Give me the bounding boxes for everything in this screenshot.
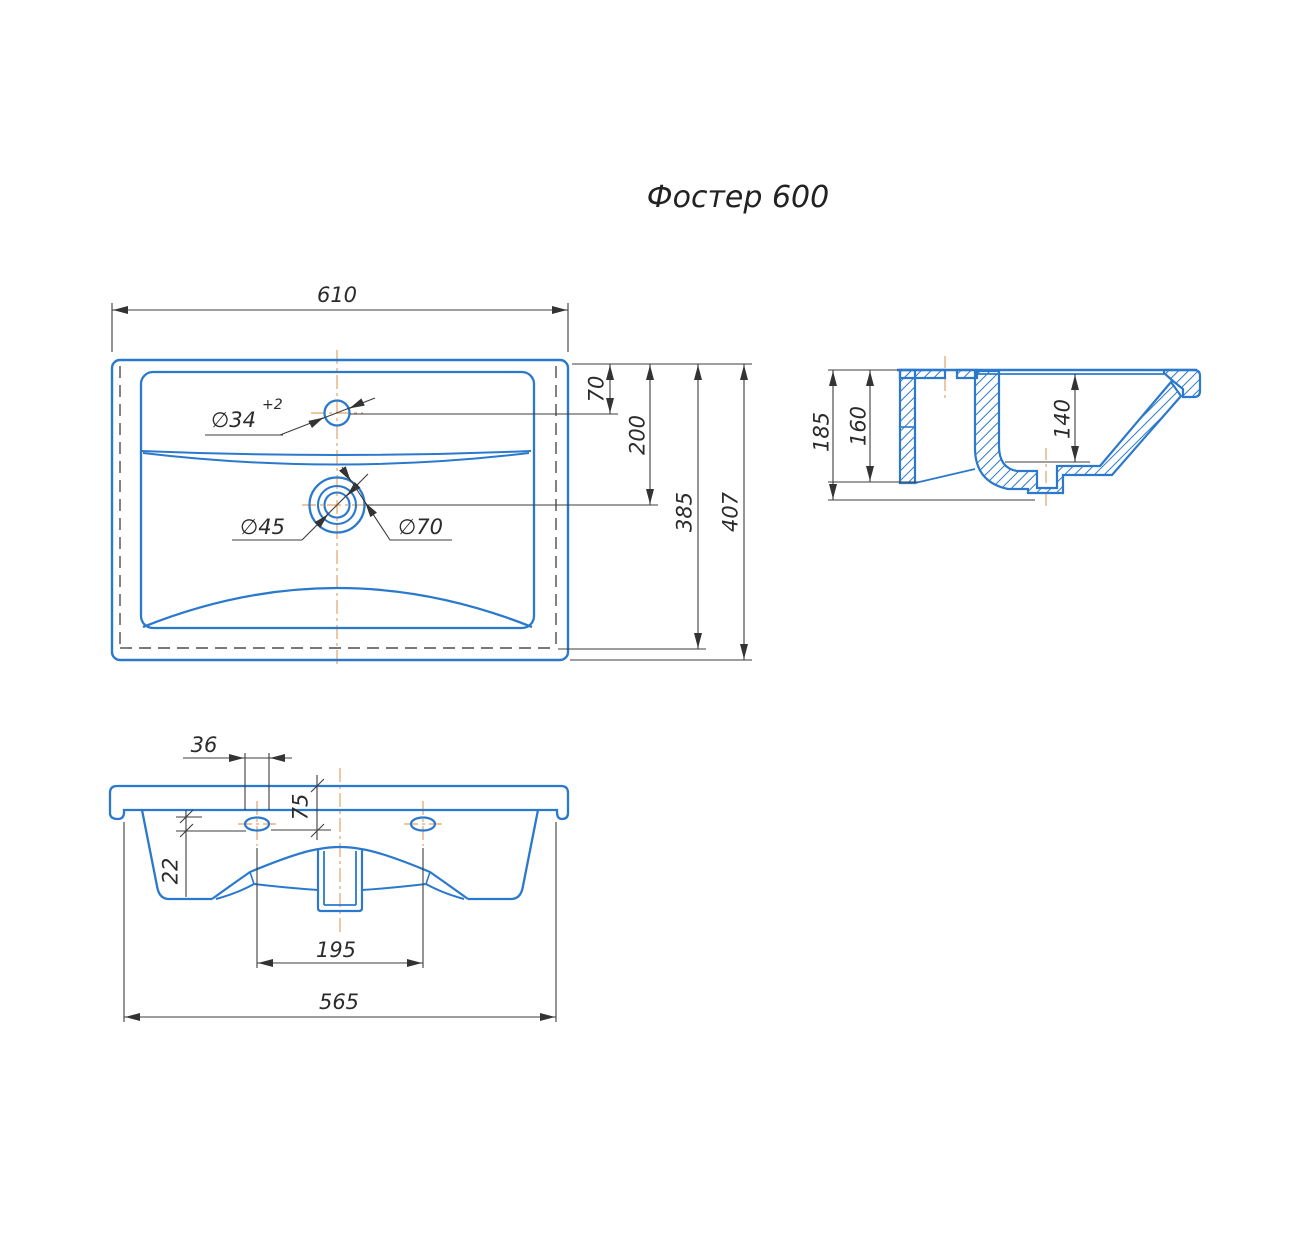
drawing-title: Фостер 600 [647,180,829,215]
dim-total-width: 610 [317,283,357,307]
drawing-canvas: Фостер 600 [0,0,1300,1238]
dim-height-total: 185 [809,412,833,452]
dim-faucet-tol: +2 [262,397,283,413]
dim-drain-inner-dia: ∅45 [240,515,285,539]
dim-holes-spacing: 195 [316,938,356,962]
sink-technical-drawing: Фостер 600 [0,0,1300,1238]
plan-centerlines [302,350,372,668]
dim-basin-depth: 140 [1050,399,1074,439]
plan-view: 610 70 200 385 407 ∅34 +2 ∅45 ∅70 [112,283,752,668]
dim-drain-outer-dia: ∅70 [398,515,443,539]
hidden-footprint-lines [120,366,556,648]
dim-faucet-dia: ∅34 [211,408,256,432]
dim-slot-width: 36 [191,733,218,757]
dim-drain-offset: 200 [625,415,649,455]
dim-depth-total: 407 [718,491,742,532]
dim-height-back: 160 [846,406,870,446]
dim-slot-top-offset: 75 [288,794,312,821]
dim-depth-inner: 385 [672,492,696,532]
plan-outline [112,360,568,660]
dim-width-bottom: 565 [319,990,359,1014]
dim-slot-height: 22 [158,858,182,885]
section-view: 185 160 140 [809,356,1200,506]
front-outline [110,786,568,911]
dim-faucet-offset: 70 [584,376,608,403]
front-view: 36 75 22 195 565 [110,733,568,1022]
plan-dimension-lines [112,303,752,660]
section-basin-profile [975,371,1181,493]
